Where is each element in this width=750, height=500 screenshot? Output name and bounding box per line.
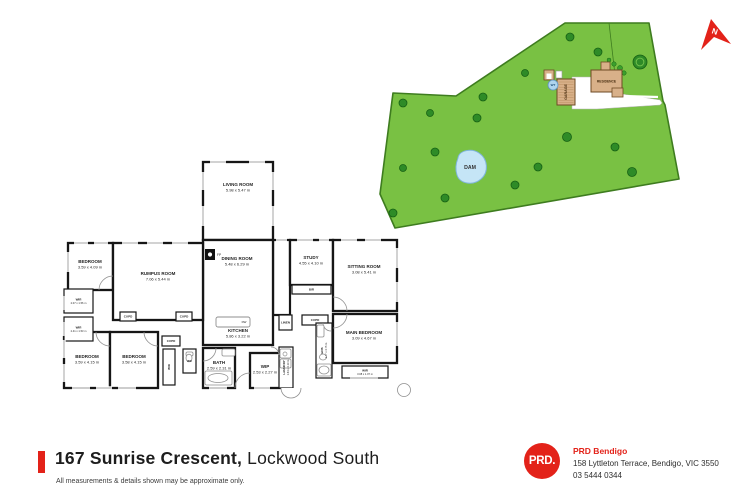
room-name: SITTING ROOM xyxy=(348,264,381,269)
room-name: BEDROOM xyxy=(78,259,102,264)
fixture xyxy=(319,366,329,374)
bush xyxy=(612,62,616,66)
garage-label: GARAGE xyxy=(564,84,568,100)
closet-name: WIR xyxy=(362,369,369,373)
closet-name: CUPD xyxy=(124,315,133,319)
tree xyxy=(389,209,397,217)
hallway xyxy=(273,240,290,315)
closet-dims: 1.64 x 4.13 m xyxy=(286,360,290,376)
closet-name: ENS xyxy=(320,347,324,353)
plan-canvas: DAMGARAGERESIDENCEWTNDWFPLIVING ROOM5.98… xyxy=(0,0,750,500)
room-dims: 7.06 x 5.44 m xyxy=(146,277,171,282)
residence-extension xyxy=(612,88,623,97)
tree xyxy=(611,143,619,151)
room-dims: 2.53 x 2.27 m xyxy=(253,370,278,375)
tree xyxy=(566,33,574,41)
outbuilding xyxy=(556,71,562,78)
fixture xyxy=(283,352,287,356)
tree xyxy=(633,55,647,69)
tree xyxy=(441,194,449,202)
closet-name: WIR xyxy=(167,363,171,370)
fireplace-core xyxy=(208,252,212,256)
tree xyxy=(628,168,637,177)
fixture xyxy=(222,349,235,356)
site-plan: DAMGARAGERESIDENCEWT xyxy=(380,23,679,228)
room-name: BEDROOM xyxy=(122,354,146,359)
tree xyxy=(473,114,481,122)
room-name: WIP xyxy=(261,364,270,369)
closet-name: LAUNDRY xyxy=(282,360,286,375)
closet-dims: 2.41 x 1.53 m xyxy=(71,329,87,333)
room-name: LIVING ROOM xyxy=(223,182,254,187)
fixture xyxy=(317,325,324,337)
room-name: MAIN BEDROOM xyxy=(346,330,382,335)
closet-dims: 1.77 x 4.75 m xyxy=(324,343,328,359)
dam-label: DAM xyxy=(464,165,476,171)
closet-name: WIR xyxy=(76,298,83,302)
closet-name: BIR xyxy=(309,288,315,292)
tank xyxy=(398,384,411,397)
tree xyxy=(511,181,519,189)
prd-logo-text: PRD. xyxy=(529,455,555,467)
land-parcel xyxy=(380,23,679,228)
room-dims: 3.59 x 4.15 m xyxy=(75,360,100,365)
tree xyxy=(522,70,529,77)
floor-plan: DWFPLIVING ROOM5.98 x 5.47 mDINING ROOM5… xyxy=(64,162,411,398)
prd-logo: PRD. xyxy=(524,443,560,479)
bush xyxy=(607,58,611,62)
room-name: RUMPUS ROOM xyxy=(141,271,176,276)
room-dims: 5.98 x 5.47 m xyxy=(226,188,251,193)
dishwasher-label: DW xyxy=(242,320,247,324)
tree xyxy=(431,148,439,156)
water-tank-label: WT xyxy=(551,83,556,87)
fireplace-label: FP xyxy=(217,253,221,257)
agency-name: PRD Bendigo xyxy=(573,445,719,458)
tree xyxy=(479,93,487,101)
room-dims: 3.58 x 4.15 m xyxy=(122,360,147,365)
closet-name: CUPD xyxy=(311,318,320,322)
closet-dims: 2.07 x 1.56 m xyxy=(71,301,87,305)
room-dims: 3.09 x 4.67 m xyxy=(352,336,377,341)
accent-bar xyxy=(38,451,45,473)
room-name: DINING ROOM xyxy=(222,256,253,261)
room-dims: 2.59 x 2.31 m xyxy=(207,366,232,371)
tree xyxy=(427,110,434,117)
closet-name: LINEN xyxy=(281,321,290,325)
room-name: BEDROOM xyxy=(75,354,99,359)
agency-address: 158 Lyttleton Terrace, Bendigo, VIC 3550 xyxy=(573,458,719,470)
street-address: 167 Sunrise Crescent, xyxy=(55,448,242,468)
disclaimer-text: All measurements & details shown may be … xyxy=(56,478,245,485)
floorplan-page: DAMGARAGERESIDENCEWTNDWFPLIVING ROOM5.98… xyxy=(0,0,750,500)
door-arc xyxy=(235,373,250,388)
room-name: KITCHEN xyxy=(228,328,248,333)
north-arrow: N xyxy=(701,19,731,50)
property-title: 167 Sunrise Crescent, Lockwood South xyxy=(55,448,379,469)
fixture xyxy=(208,374,228,383)
closet-name: WIR xyxy=(76,326,83,330)
shed-door xyxy=(547,74,552,80)
residence-label: RESIDENCE xyxy=(597,79,617,83)
room-dims: 4.55 x 4.10 m xyxy=(299,261,324,266)
tree xyxy=(563,133,572,142)
room-dims: 3.59 x 4.09 m xyxy=(78,265,103,270)
closet-name: CUPD xyxy=(180,315,189,319)
room xyxy=(113,243,203,320)
agency-phone: 03 5444 0344 xyxy=(573,470,719,482)
tree xyxy=(534,163,542,171)
room xyxy=(203,162,273,240)
closet-name: WC xyxy=(187,359,193,363)
room-dims: 3.08 x 5.41 m xyxy=(352,270,377,275)
tree xyxy=(594,48,602,56)
closet-name: CUPD xyxy=(167,339,176,343)
room-name: STUDY xyxy=(303,255,318,260)
room-dims: 5.48 x 6.29 m xyxy=(225,262,250,267)
access-path xyxy=(622,96,658,97)
room-dims: 5.86 x 3.22 m xyxy=(226,334,251,339)
room-name: BATH xyxy=(213,360,225,365)
closet-dims: 3.08 x 1.07 m xyxy=(357,372,373,376)
entry-step xyxy=(281,388,301,398)
agency-details: PRD Bendigo 158 Lyttleton Terrace, Bendi… xyxy=(573,445,719,482)
suburb: Lockwood South xyxy=(247,448,379,468)
tree xyxy=(400,165,407,172)
tree xyxy=(399,99,407,107)
